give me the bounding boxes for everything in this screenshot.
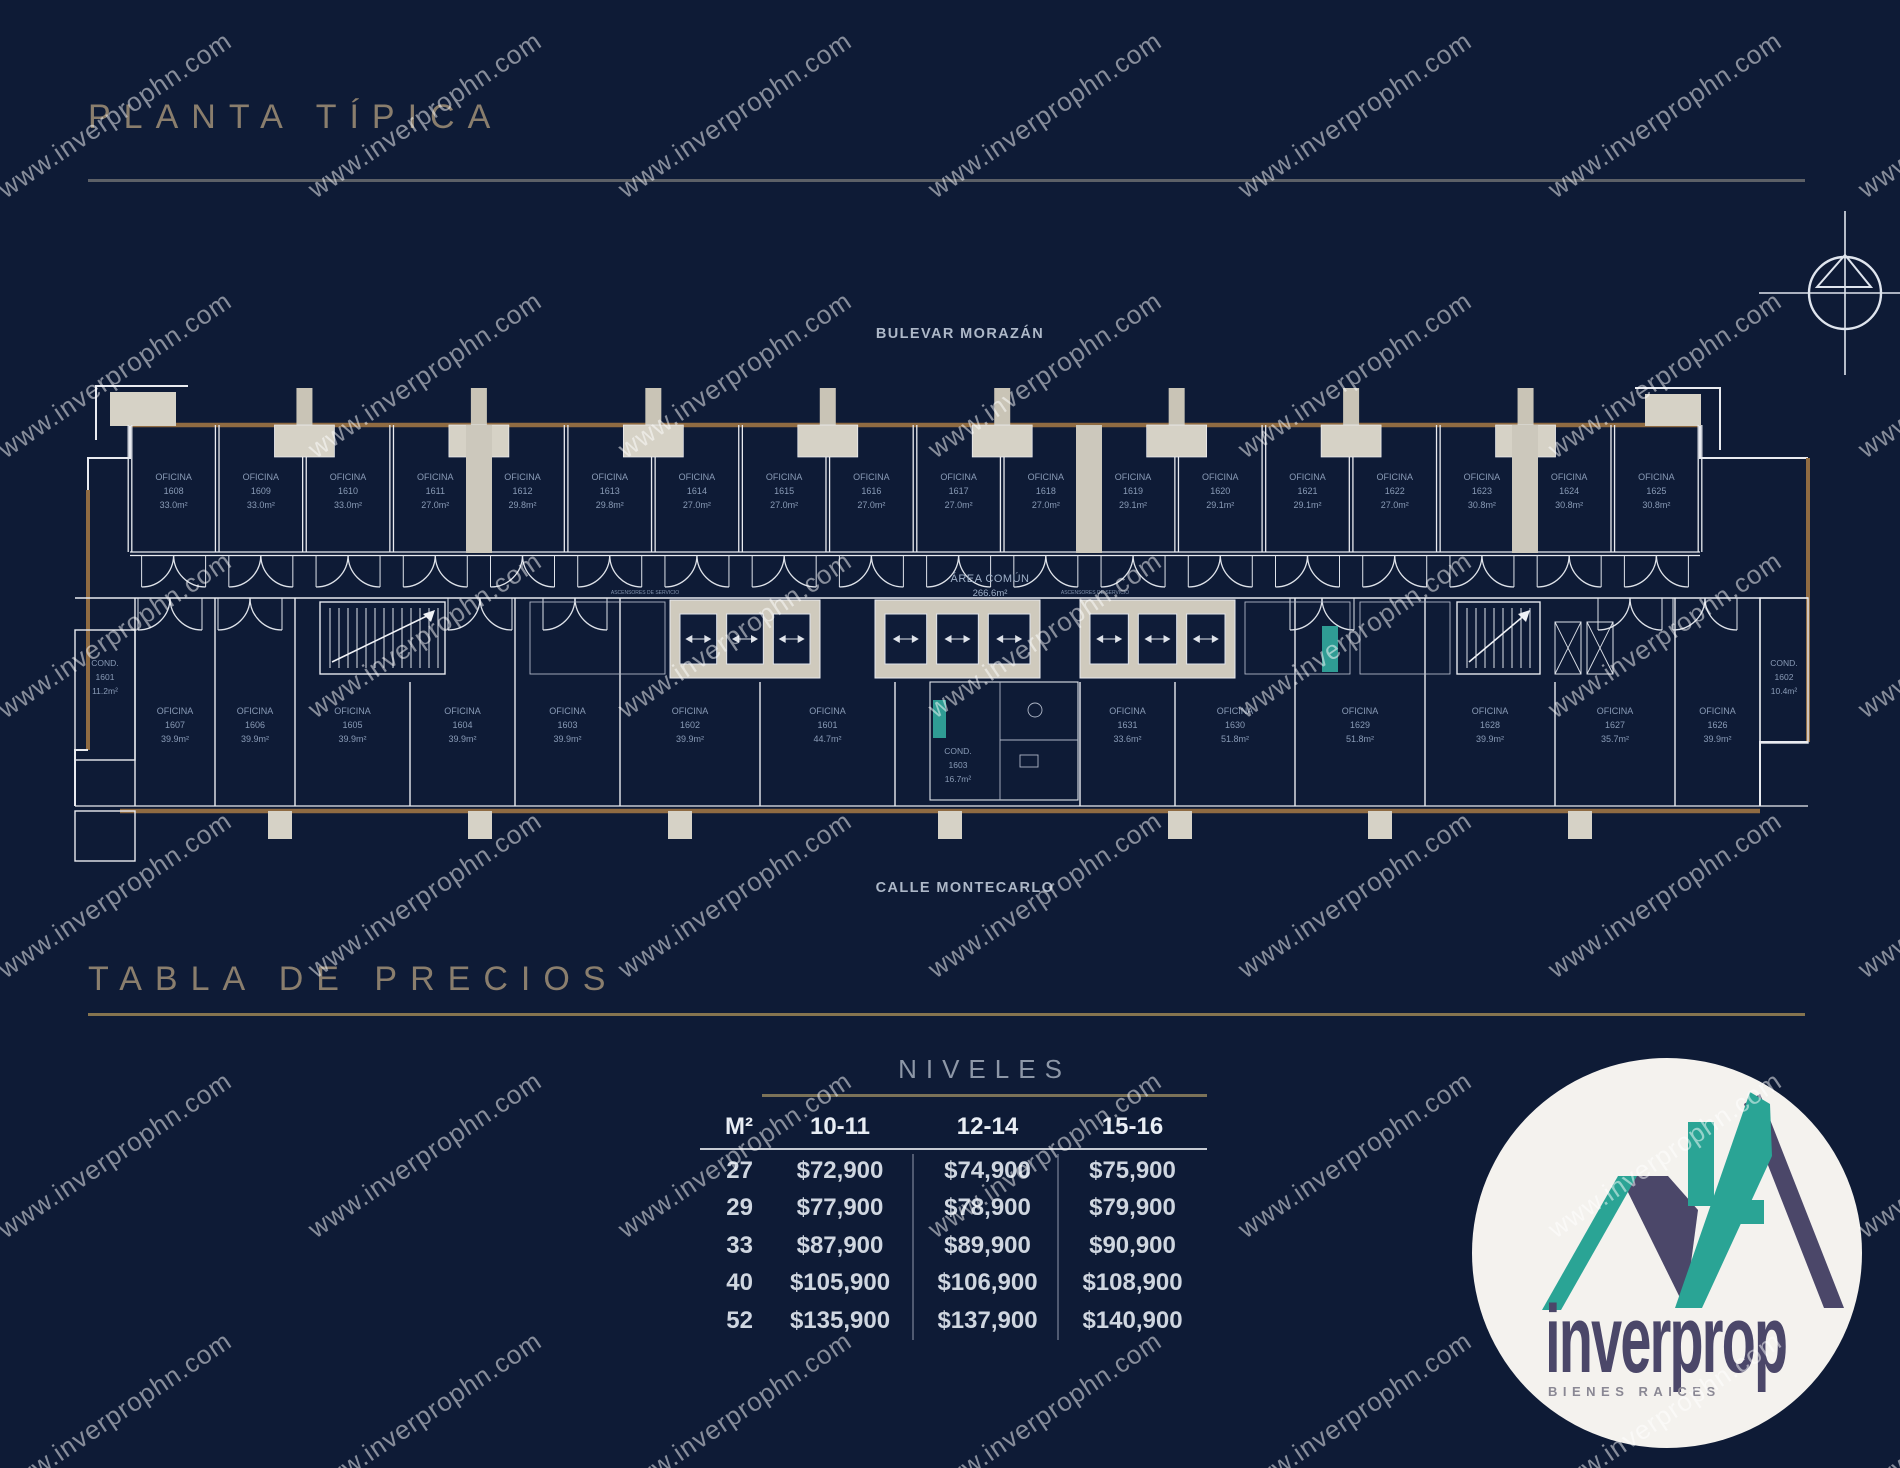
room-label: 29.8m² [596,500,624,510]
door-arc [138,598,170,630]
room-label: 33.6m² [1113,734,1141,744]
room-label: COND. [91,658,118,668]
room-label: 1623 [1472,486,1492,496]
room-label: 39.9m² [161,734,189,744]
room-label: OFICINA [155,472,192,482]
balcony-stub [471,388,487,425]
room-label: OFICINA [549,706,586,716]
watermark: www.inverprophn.com [1232,1065,1477,1244]
room-label: 27.0m² [1032,500,1060,510]
room-label: 33.0m² [247,500,275,510]
door-arc [250,598,282,630]
room-label: 1626 [1707,720,1727,730]
prices-title: TABLA DE PRECIOS [88,960,618,999]
table-col-header: 10-11 [765,1113,915,1141]
column-block [623,425,683,457]
watermark: www.inverprophn.com [1852,545,1900,724]
watermark: www.inverprophn.com [1852,25,1900,204]
door-arc [1624,555,1656,587]
price-cell: $140,900 [1060,1307,1205,1335]
room-label: 39.9m² [1476,734,1504,744]
price-cell: $106,900 [915,1269,1060,1297]
room-label: 1616 [861,486,881,496]
door-arc [1450,555,1482,587]
door-arc [578,555,610,587]
door-arc [491,555,523,587]
watermark: www.inverprophn.com [1852,805,1900,984]
core-label: ASCENSORES DE SERVICIO [611,590,679,596]
room-label: OFICINA [1342,706,1379,716]
door-arc [1276,555,1308,587]
column-block [1168,811,1192,839]
m2-cell: 29 [665,1194,765,1222]
door-arc [218,598,250,630]
page-title: PLANTA TÍPICA [88,98,503,137]
watermark: www.inverprophn.com [302,1065,547,1244]
price-cell: $78,900 [915,1194,1060,1222]
watermark: www.inverprophn.com [0,1325,238,1468]
common-area-label: 266.6m² [973,588,1008,599]
door-arc [575,598,607,630]
room-label: 1617 [949,486,969,496]
room-label: 29.1m² [1119,500,1147,510]
room-label: OFICINA [940,472,977,482]
watermark: www.inverprophn.com [1232,25,1477,204]
room-label: 39.9m² [448,734,476,744]
balcony-stub [820,388,836,425]
m2-cell: 40 [665,1269,765,1297]
column-block [468,811,492,839]
niveles-label: NIVELES [762,1054,1207,1085]
room-label: OFICINA [237,706,274,716]
room-label: OFICINA [809,706,846,716]
room-label: OFICINA [1289,472,1326,482]
room-label: OFICINA [591,472,628,482]
title-underline [88,179,1805,182]
room-label: 1612 [512,486,532,496]
door-arc [697,555,729,587]
balcony-stub [645,388,661,425]
door-arc [1220,555,1252,587]
teal-panel [933,700,946,738]
room-label: COND. [1770,658,1797,668]
door-arc [316,555,348,587]
door-arc [1133,555,1165,587]
door-arc [480,598,512,630]
teal-panel [1322,626,1338,672]
service-room [530,602,665,674]
room-label: 1601 [817,720,837,730]
table-col-header: 15-16 [1060,1113,1205,1141]
room-label: 39.9m² [553,734,581,744]
room-label: 27.0m² [1381,500,1409,510]
door-arc [142,555,174,587]
cond-room [1760,598,1808,743]
door-arc [1598,598,1630,630]
price-cell: $135,900 [765,1307,915,1335]
room-label: 1621 [1297,486,1317,496]
stair-arrow [1469,614,1526,662]
table-header-underline [700,1148,1207,1150]
price-cell: $90,900 [1060,1232,1205,1260]
column-block [1321,425,1381,457]
table-body: 27$72,900$74,900$75,90029$77,900$78,900$… [665,1152,1205,1340]
page: PLANTA TÍPICA BULEVAR MORAZÁN CALLE MONT… [0,0,1900,1468]
price-cell: $75,900 [1060,1157,1205,1185]
table-row: 33$87,900$89,900$90,900 [665,1227,1205,1265]
price-cell: $137,900 [915,1307,1060,1335]
room-label: 27.0m² [857,500,885,510]
room-label: 29.8m² [508,500,536,510]
column-block [938,811,962,839]
logo-house-icon: inverprop BIENES RAICES [1472,1058,1862,1448]
watermark: www.inverprophn.com [612,25,857,204]
door-arc [543,598,575,630]
room-label: 1603 [557,720,577,730]
room-label: 1606 [245,720,265,730]
room-label: 27.0m² [421,500,449,510]
room-label: OFICINA [1464,472,1501,482]
m2-cell: 27 [665,1157,765,1185]
watermark: www.inverprophn.com [1542,25,1787,204]
price-cell: $72,900 [765,1157,915,1185]
room-label: OFICINA [1638,472,1675,482]
corner-block [1645,394,1701,426]
room-label: 39.9m² [241,734,269,744]
room-label: 30.8m² [1555,500,1583,510]
balcony-stub [1343,388,1359,425]
room-label: OFICINA [1699,706,1736,716]
door-arc [839,555,871,587]
room-label: 29.1m² [1206,500,1234,510]
wall-step [75,750,88,806]
column-block [668,811,692,839]
price-cell: $87,900 [765,1232,915,1260]
room-label: 30.8m² [1468,500,1496,510]
room-label: 1602 [680,720,700,730]
room-label: 27.0m² [945,500,973,510]
room-label: 1629 [1350,720,1370,730]
room-label: OFICINA [679,472,716,482]
room-label: OFICINA [766,472,803,482]
door-arc [1308,555,1340,587]
room-label: OFICINA [243,472,280,482]
room-label: 30.8m² [1642,500,1670,510]
room-label: OFICINA [504,472,541,482]
room-label: 10.4m² [1771,686,1798,696]
room-label: 1613 [600,486,620,496]
room-label: 33.0m² [334,500,362,510]
corner-block [110,392,176,426]
door-arc [1363,555,1395,587]
balcony-stub [1518,388,1534,425]
door-arc [448,598,480,630]
core-label: ASCENSORES DE SERVICIO [1061,590,1129,596]
room-label: OFICINA [1028,472,1065,482]
room-label: OFICINA [417,472,454,482]
room-label: 11.2m² [92,686,118,696]
table-row: 52$135,900$137,900$140,900 [665,1302,1205,1340]
table-col-header: M² [665,1113,765,1141]
door-arc [1656,555,1688,587]
room-label: 35.7m² [1601,734,1629,744]
door-arc [784,555,816,587]
door-arc [1569,555,1601,587]
watermark: www.inverprophn.com [922,25,1167,204]
table-col-header: 12-14 [915,1113,1060,1141]
table-row: 40$105,900$106,900$108,900 [665,1265,1205,1303]
room-label: 33.0m² [160,500,188,510]
m2-cell: 33 [665,1232,765,1260]
room-label: 1601 [96,672,115,682]
door-arc [752,555,784,587]
service-room [1360,602,1450,674]
door-arc [1101,555,1133,587]
column-block [1147,425,1207,457]
door-arc [261,555,293,587]
watermark: www.inverprophn.com [1232,1325,1477,1468]
table-divider [912,1154,914,1340]
room-label: OFICINA [334,706,371,716]
common-area-label: ÁREA COMÚN [951,572,1030,585]
table-row: 29$77,900$78,900$79,900 [665,1190,1205,1228]
room-label: COND. [944,746,971,756]
fixture [1020,755,1038,767]
door-arc [610,555,642,587]
door-arc [871,555,903,587]
balcony-stub [296,388,312,425]
door-arc [174,555,206,587]
room-label: OFICINA [157,706,194,716]
room-label: 1631 [1117,720,1137,730]
price-cell: $105,900 [765,1269,915,1297]
room-label: OFICINA [1551,472,1588,482]
room-label: 29.1m² [1293,500,1321,510]
room-label: 1602 [1775,672,1794,682]
room-label: OFICINA [1472,706,1509,716]
wall-step [88,425,130,490]
room-label: OFICINA [444,706,481,716]
room-label: 27.0m² [683,500,711,510]
room-label: 1611 [426,486,445,496]
table-row: 27$72,900$74,900$75,900 [665,1152,1205,1190]
room-label: 39.9m² [1703,734,1731,744]
wall-step [1760,742,1808,806]
watermark: www.inverprophn.com [0,1065,238,1244]
niveles-underline [762,1094,1207,1097]
room-label: 51.8m² [1221,734,1249,744]
room-label: 1624 [1559,486,1579,496]
price-table: M²10-1112-1415-16 27$72,900$74,900$75,90… [665,1108,1205,1348]
stair-arrow [332,614,431,662]
price-cell: $89,900 [915,1232,1060,1260]
room-label: 1610 [338,486,358,496]
door-arc [403,555,435,587]
door-arc [1395,555,1427,587]
room-label: 1615 [774,486,794,496]
door-arc [1046,555,1078,587]
column-block [972,425,1032,457]
room-label: OFICINA [1376,472,1413,482]
floor-plan: OFICINA160833.0m²OFICINA160933.0m²OFICIN… [60,330,1840,890]
column-block [798,425,858,457]
room-label: 1614 [687,486,707,496]
room-label: 1628 [1480,720,1500,730]
room-label: OFICINA [1109,706,1146,716]
room-label: 51.8m² [1346,734,1374,744]
room-label: 1620 [1210,486,1230,496]
room-label: 1618 [1036,486,1056,496]
column-block [1568,811,1592,839]
room-label: 1609 [251,486,271,496]
door-arc [523,555,555,587]
door-arc [1322,598,1354,630]
door-arc [1673,598,1705,630]
service-shaft [1076,425,1102,553]
room-label: OFICINA [1115,472,1152,482]
room-label: 1608 [164,486,184,496]
room-label: 1603 [949,760,968,770]
logo: inverprop BIENES RAICES [1472,1058,1862,1448]
price-cell: $79,900 [1060,1194,1205,1222]
room-label: OFICINA [672,706,709,716]
door-arc [1537,555,1569,587]
room-label: 16.7m² [945,774,972,784]
door-arc [348,555,380,587]
room-label: 1627 [1605,720,1625,730]
room-label: 39.9m² [338,734,366,744]
m2-cell: 52 [665,1307,765,1335]
logo-brand: inverprop [1545,1285,1786,1393]
door-arc [229,555,261,587]
door-arc [1630,598,1662,630]
service-shaft [1512,425,1538,553]
price-cell: $77,900 [765,1194,915,1222]
price-cell: $74,900 [915,1157,1060,1185]
watermark: www.inverprophn.com [302,1325,547,1468]
door-arc [1482,555,1514,587]
fixture [1028,703,1042,717]
room-label: 44.7m² [813,734,841,744]
door-arc [435,555,467,587]
balcony-stub [1169,388,1185,425]
room-label: OFICINA [1202,472,1239,482]
entry-stub [75,811,135,861]
room-label: OFICINA [1597,706,1634,716]
service-shaft [466,425,492,553]
room-label: 39.9m² [676,734,704,744]
room-label: 1630 [1225,720,1245,730]
door-arc [1188,555,1220,587]
prices-underline [88,1013,1805,1016]
room-label: OFICINA [330,472,367,482]
room-label: 27.0m² [770,500,798,510]
room-label: 1605 [342,720,362,730]
room-label: 1622 [1385,486,1405,496]
logo-tagline: BIENES RAICES [1548,1384,1721,1399]
door-arc [665,555,697,587]
balcony-stub [994,388,1010,425]
column-block [274,425,334,457]
door-arc [1705,598,1737,630]
column-block [1368,811,1392,839]
table-header-row: M²10-1112-1415-16 [665,1108,1205,1146]
room-label: OFICINA [1217,706,1254,716]
price-cell: $108,900 [1060,1269,1205,1297]
column-block [268,811,292,839]
wall-step [1700,425,1808,458]
table-divider [1057,1154,1059,1340]
door-arc [170,598,202,630]
room-label: 1625 [1646,486,1666,496]
room-label: 1604 [452,720,472,730]
room-label: 1607 [165,720,185,730]
room-label: OFICINA [853,472,890,482]
room-label: 1619 [1123,486,1143,496]
